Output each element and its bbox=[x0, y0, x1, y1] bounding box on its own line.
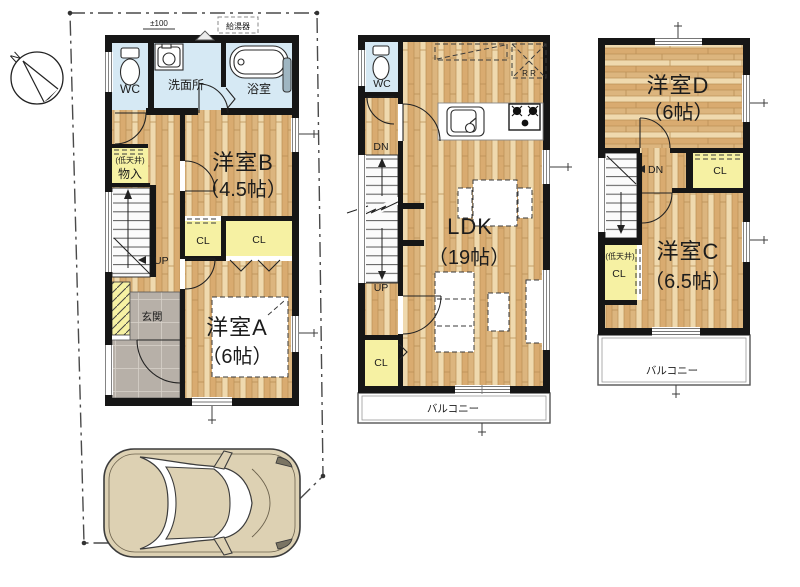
window bbox=[357, 50, 366, 86]
window bbox=[542, 150, 551, 184]
closet1-label: CL bbox=[713, 165, 727, 177]
bath-label: 浴室 bbox=[247, 81, 271, 96]
north-compass-icon: N bbox=[7, 49, 63, 104]
storage-label: 物入 bbox=[118, 167, 142, 181]
window bbox=[655, 37, 702, 46]
closet2-label: CL bbox=[612, 268, 626, 280]
floor-plan-canvas: N ±100 給湯器 bbox=[0, 0, 800, 587]
window bbox=[357, 155, 366, 283]
stove-icon bbox=[509, 104, 540, 130]
porch-floor bbox=[112, 340, 180, 398]
wc-label: WC bbox=[373, 78, 391, 90]
up-label: UP bbox=[154, 255, 169, 267]
sink-icon bbox=[447, 107, 484, 136]
wc-label: WC bbox=[120, 82, 140, 96]
floor1-plan: WC 洗面所 浴室 洋室B （4.5帖） (低天井) 物入 UP CL CL 玄… bbox=[104, 31, 318, 424]
balcony-door bbox=[455, 385, 510, 394]
washroom-label: 洗面所 bbox=[168, 78, 204, 92]
window bbox=[597, 158, 606, 232]
porch-opening bbox=[104, 345, 113, 395]
room-d-name: 洋室D bbox=[647, 73, 710, 98]
closet-label: CL bbox=[374, 357, 388, 369]
floor3-plan: 洋室D （6帖） DN CL (低天井) CL 洋室C （6.5帖） バルコニー bbox=[597, 22, 768, 398]
coffee-table-outline bbox=[488, 293, 509, 331]
window bbox=[742, 222, 751, 262]
storage-note: (低天井) bbox=[115, 155, 145, 165]
toilet-icon bbox=[373, 46, 389, 80]
room-d-size: （6帖） bbox=[642, 101, 713, 124]
window bbox=[291, 316, 300, 352]
kitchen-counter bbox=[438, 103, 543, 140]
window bbox=[542, 270, 551, 350]
window bbox=[192, 397, 232, 407]
elevation-label: ±100 bbox=[150, 19, 168, 28]
window bbox=[742, 75, 751, 122]
car-top-view bbox=[104, 449, 300, 557]
window bbox=[652, 327, 700, 336]
room-c-size: （6.5帖） bbox=[644, 270, 732, 293]
sofa-outline bbox=[435, 272, 474, 352]
entrance-label: 玄関 bbox=[142, 310, 163, 323]
water-heater-label: 給湯器 bbox=[226, 21, 250, 31]
balcony-label: バルコニー bbox=[427, 403, 479, 415]
ldk-name: LDK bbox=[447, 214, 493, 239]
balcony-label: バルコニー bbox=[646, 365, 698, 377]
floor-plan-sheet: N ±100 給湯器 bbox=[0, 0, 800, 587]
closet2-label: CL bbox=[252, 234, 266, 246]
washing-machine-icon bbox=[155, 44, 183, 70]
window bbox=[104, 192, 113, 272]
window bbox=[291, 118, 300, 152]
balcony-3f bbox=[598, 335, 750, 385]
up-label: UP bbox=[374, 282, 389, 294]
room-a-name: 洋室A bbox=[206, 315, 268, 340]
storage-note: (低天井) bbox=[605, 251, 635, 261]
dn-label: DN bbox=[373, 141, 388, 153]
room-a-size: （6帖） bbox=[201, 345, 272, 368]
window bbox=[104, 52, 113, 92]
toilet-icon bbox=[121, 48, 140, 85]
stairs-1f bbox=[112, 188, 150, 277]
room-b-size: （4.5帖） bbox=[199, 178, 287, 201]
room-c-name: 洋室C bbox=[657, 239, 720, 264]
room-b-name: 洋室B bbox=[212, 150, 274, 175]
floor2-plan: R R WC DN UP CL LDK （19帖） bbox=[347, 35, 572, 436]
water-heater-box: 給湯器 bbox=[218, 17, 258, 33]
north-label: N bbox=[7, 49, 23, 65]
fridge-label: R R bbox=[522, 69, 536, 78]
ldk-size: （19帖） bbox=[428, 246, 510, 269]
dn-label: DN bbox=[648, 164, 663, 176]
closet1-label: CL bbox=[196, 235, 210, 247]
